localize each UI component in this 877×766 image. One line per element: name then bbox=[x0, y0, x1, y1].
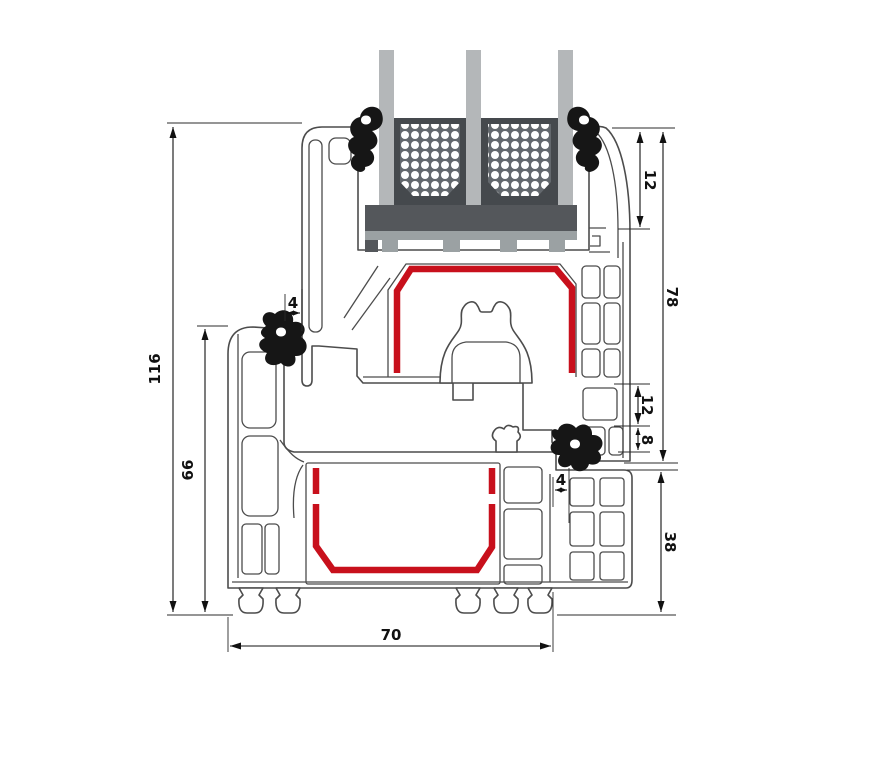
dim-label-frame-face-height: 38 bbox=[661, 532, 679, 553]
dimension-frame-height: 66 bbox=[179, 326, 228, 612]
glazing-gasket-left bbox=[348, 107, 383, 172]
frame-foot bbox=[276, 588, 300, 613]
frame-seal-gasket-left bbox=[259, 310, 306, 366]
glass-pane bbox=[466, 50, 481, 208]
spacer-bar bbox=[394, 118, 466, 206]
glazing-unit bbox=[365, 50, 577, 252]
frame-foot bbox=[456, 588, 480, 613]
glass-pane bbox=[558, 50, 573, 208]
diagram-canvas: 116 66 70 12 78 12 8 38 4 bbox=[0, 0, 877, 766]
glass-pane bbox=[379, 50, 394, 208]
dim-label-groove-depth: 8 bbox=[638, 435, 656, 445]
dim-label-gap-right: 4 bbox=[556, 471, 566, 489]
frame-foot bbox=[528, 588, 552, 613]
window-profile-diagram: 116 66 70 12 78 12 8 38 4 bbox=[0, 0, 877, 766]
frame-center-clip bbox=[492, 425, 520, 452]
setting-block bbox=[365, 205, 577, 231]
frame-foot bbox=[494, 588, 518, 613]
glazing-bridge bbox=[365, 231, 577, 240]
spacer-bar bbox=[481, 118, 558, 206]
dim-label-groove-offset: 12 bbox=[638, 395, 656, 416]
dim-label-bead-height: 12 bbox=[641, 170, 659, 191]
dim-label-frame-height: 66 bbox=[179, 460, 197, 481]
dim-label-profile-depth: 70 bbox=[381, 626, 402, 644]
dim-label-overall-height: 116 bbox=[146, 353, 164, 384]
frame-foot bbox=[239, 588, 263, 613]
dim-label-sash-height: 78 bbox=[663, 287, 681, 308]
dim-label-gap-left: 4 bbox=[288, 294, 298, 312]
